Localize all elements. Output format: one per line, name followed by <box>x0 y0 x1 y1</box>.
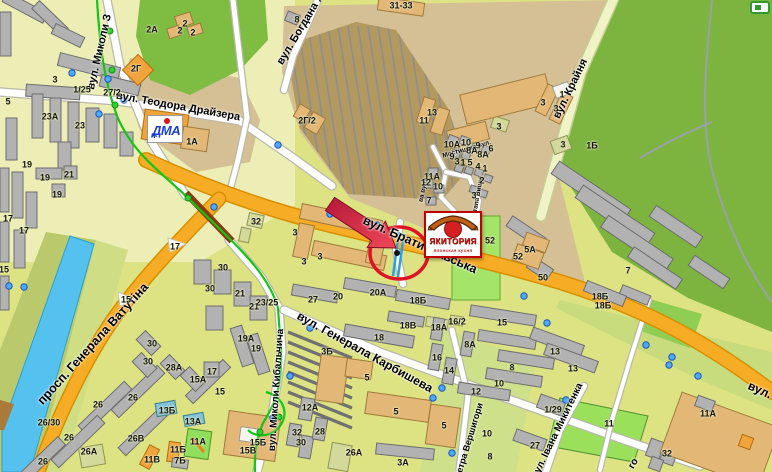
building <box>426 197 436 205</box>
building <box>449 315 463 326</box>
yakitoria-logo-title: ЯКИТОРИЯ <box>426 237 480 246</box>
building <box>183 412 205 426</box>
transit-stop-dot <box>307 325 313 331</box>
route-stop-dot <box>112 102 118 108</box>
location-point-dot <box>394 250 400 256</box>
building <box>78 444 105 468</box>
transit-stop-dot <box>666 362 672 368</box>
building <box>425 404 460 448</box>
building <box>206 306 223 330</box>
dma-logo-asterisk-icon: ✱ <box>151 132 158 140</box>
building <box>204 362 219 377</box>
building <box>291 284 338 303</box>
building <box>387 311 424 327</box>
transit-stop-dot <box>669 354 675 360</box>
building <box>139 445 159 470</box>
transit-stop-dot <box>544 320 550 326</box>
building <box>250 296 267 320</box>
building <box>345 358 373 379</box>
building <box>52 184 65 197</box>
building <box>0 222 9 262</box>
building <box>234 282 251 306</box>
building <box>68 102 79 148</box>
map-corner-badge-icon <box>750 1 770 14</box>
transit-stop-dot <box>563 397 569 403</box>
building <box>0 168 9 212</box>
building <box>328 442 352 471</box>
transit-stop-dot <box>275 142 281 148</box>
transit-stop-dot <box>105 76 111 82</box>
building <box>6 118 17 160</box>
building <box>315 354 349 403</box>
dma-store-logo[interactable]: ДМА ✱ <box>147 115 183 143</box>
transit-stop-dot <box>430 395 436 401</box>
transit-stop-dot <box>270 415 276 421</box>
yakitoria-roof-sun-icon <box>426 213 480 238</box>
building <box>64 166 77 179</box>
transit-stop-dot <box>521 293 527 299</box>
building <box>181 126 210 151</box>
building <box>136 331 161 356</box>
transit-stop-dot <box>6 283 12 289</box>
building <box>428 168 438 176</box>
route-stop-dot <box>257 429 263 435</box>
route-stop-dot <box>276 414 282 420</box>
building <box>365 392 431 423</box>
transit-stop-dot <box>643 342 649 348</box>
building <box>247 213 264 229</box>
transit-stop-dot <box>211 204 217 210</box>
building <box>50 98 61 142</box>
transit-stop-dot <box>695 373 701 379</box>
building <box>104 114 117 148</box>
building <box>298 397 315 421</box>
building <box>376 443 435 460</box>
building <box>343 278 396 298</box>
building <box>36 168 62 179</box>
yakitoria-logo[interactable]: ЯКИТОРИЯ японская кухня <box>424 211 482 258</box>
building <box>26 192 37 228</box>
building <box>12 172 23 218</box>
building <box>194 260 211 284</box>
building <box>0 276 9 310</box>
building <box>214 270 231 294</box>
building <box>298 435 314 459</box>
building <box>312 417 328 441</box>
yakitoria-logo-tagline: японская кухня <box>426 248 480 253</box>
transit-stop-dot <box>96 111 102 117</box>
building <box>395 289 450 309</box>
building <box>0 12 11 56</box>
transit-stop-dot <box>439 385 445 391</box>
transit-stop-dot <box>449 450 455 456</box>
building <box>470 305 537 326</box>
route-stop-dot <box>109 67 115 73</box>
building <box>171 458 188 469</box>
building <box>239 227 252 243</box>
transit-stop-dot <box>21 284 27 290</box>
transit-stop-dot <box>69 70 75 76</box>
building <box>32 94 43 138</box>
map-canvas[interactable]: вул. Миколи Звул. Теодора Драйзеравул. Б… <box>0 0 772 472</box>
building <box>14 230 25 268</box>
route-stop-dot <box>107 28 113 34</box>
building <box>155 400 177 416</box>
building <box>286 423 302 447</box>
building <box>434 185 444 193</box>
transit-stop-dot <box>287 373 293 379</box>
transit-stop-dot <box>121 97 127 103</box>
building <box>423 180 433 188</box>
route-stop-dot <box>185 195 191 201</box>
map-graphics <box>0 0 772 472</box>
